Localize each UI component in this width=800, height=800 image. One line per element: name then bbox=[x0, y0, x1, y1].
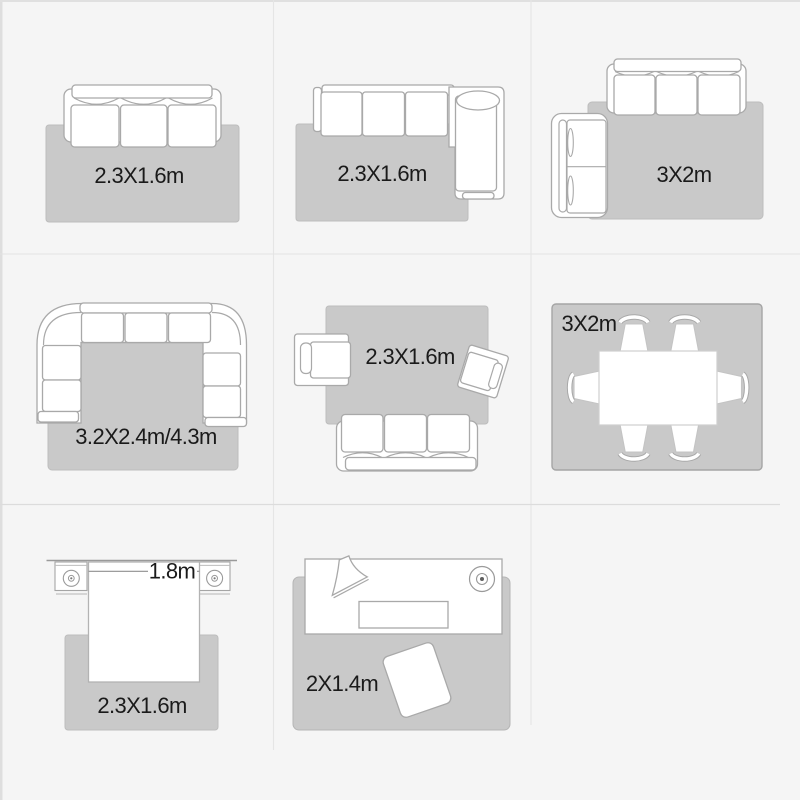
svg-text:1.8m: 1.8m bbox=[149, 559, 196, 584]
svg-text:2.3X1.6m: 2.3X1.6m bbox=[365, 344, 454, 369]
svg-text:2.3X1.6m: 2.3X1.6m bbox=[337, 161, 426, 186]
svg-text:2X1.4m: 2X1.4m bbox=[306, 671, 378, 696]
svg-text:3.2X2.4m/4.3m: 3.2X2.4m/4.3m bbox=[75, 424, 216, 449]
svg-text:2.3X1.6m: 2.3X1.6m bbox=[97, 693, 186, 718]
svg-text:3X2m: 3X2m bbox=[561, 311, 616, 336]
svg-text:2.3X1.6m: 2.3X1.6m bbox=[94, 163, 183, 188]
svg-text:3X2m: 3X2m bbox=[656, 162, 711, 187]
